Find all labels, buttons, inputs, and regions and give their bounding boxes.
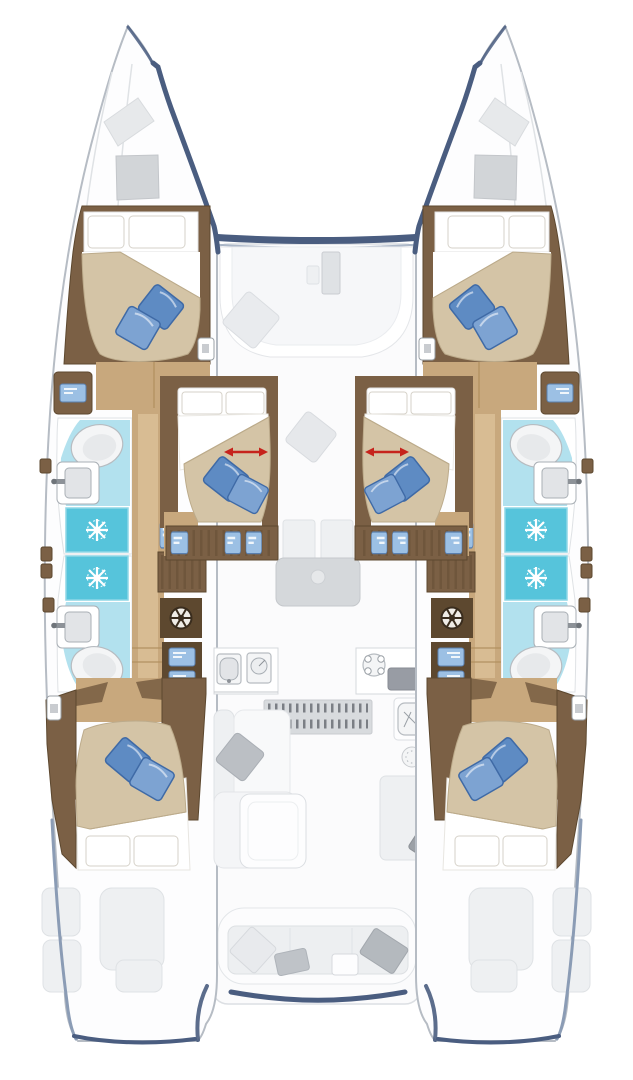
starboard-aft-cabin (427, 678, 587, 870)
corridor-floor-stripe (475, 414, 495, 702)
floorplan (0, 0, 633, 1080)
starboard-vanity-seat (541, 372, 579, 414)
port-vanity-seat (54, 372, 92, 414)
cabin-door-latch (47, 696, 61, 720)
floorplan-canvas (0, 0, 633, 1080)
cabin-joinery (455, 376, 473, 528)
pillow-icon (226, 392, 264, 414)
side-deck-step (553, 888, 591, 936)
corridor-floor-stripe (138, 414, 158, 702)
burner-icon (365, 656, 371, 662)
sink-icon (51, 606, 99, 648)
washing-machine-icon (171, 608, 192, 629)
cabin-door-latch (198, 338, 214, 360)
pillow-icon (129, 216, 185, 248)
table-recess (311, 570, 325, 584)
shower-head-icon (525, 519, 547, 541)
port-aft-cabin (46, 678, 206, 870)
transom-step (471, 960, 517, 992)
window-tab (41, 564, 52, 578)
bridgedeck-base (212, 244, 421, 1004)
window-tab (43, 598, 54, 612)
sink-icon (51, 462, 99, 504)
pillow-icon (455, 836, 499, 866)
starboard-forward-bathroom (501, 418, 582, 554)
bow-hatch-icon (116, 155, 159, 200)
locker-icon (445, 532, 462, 554)
transom-step (469, 888, 533, 970)
pillow-icon (509, 216, 545, 248)
sink-icon (534, 606, 582, 648)
locker-icon (392, 532, 408, 554)
cabin-door-latch (572, 696, 586, 720)
window-tab (581, 564, 592, 578)
burner-icon (378, 668, 384, 674)
side-deck-step (42, 888, 80, 936)
locker-icon (438, 648, 464, 666)
port-center-cabin (160, 376, 278, 560)
window-tab (579, 598, 590, 612)
transom-step (100, 888, 164, 970)
forward-cockpit (220, 247, 413, 357)
sink-icon (534, 462, 582, 504)
pillow-icon (134, 836, 178, 866)
forward-console (322, 252, 340, 294)
burner-icon (378, 656, 384, 662)
galley-starboard-counter (356, 648, 422, 694)
drain-dot (227, 679, 231, 683)
window-tab (40, 459, 51, 473)
locker-icon (225, 532, 241, 554)
window-tab (582, 459, 593, 473)
forward-console-box (307, 266, 319, 284)
locker-icon (371, 532, 387, 554)
washing-machine-icon (442, 608, 463, 629)
transom-step (116, 960, 162, 992)
port-forward-bathroom (51, 418, 132, 554)
pillow-icon (182, 392, 222, 414)
pillow-icon (448, 216, 504, 248)
locker-icon (171, 532, 188, 554)
blue-cushion-panel (60, 384, 86, 402)
galley-port-counter (214, 648, 278, 694)
starboard-aft-bathroom (501, 556, 582, 695)
burner-icon (365, 668, 371, 674)
pillow-icon (503, 836, 547, 866)
cabin-joinery (160, 376, 178, 528)
cabin-door-latch (419, 338, 435, 360)
locker-icon (246, 532, 262, 554)
pillow-icon (88, 216, 124, 248)
cushion-icon (332, 954, 358, 975)
shower-head-icon (525, 567, 547, 589)
pillow-icon (369, 392, 407, 414)
shower-head-icon (86, 519, 108, 541)
shower-head-icon (86, 567, 108, 589)
blue-cushion-panel (547, 384, 573, 402)
bow-hatch-icon (474, 155, 517, 200)
pillow-icon (411, 392, 451, 414)
window-tab (41, 547, 52, 561)
port-aft-bathroom (51, 556, 132, 695)
sink-basin (220, 658, 238, 680)
pillow-icon (86, 836, 130, 866)
locker-icon (169, 648, 195, 666)
starboard-center-cabin (355, 376, 473, 560)
window-tab (581, 547, 592, 561)
